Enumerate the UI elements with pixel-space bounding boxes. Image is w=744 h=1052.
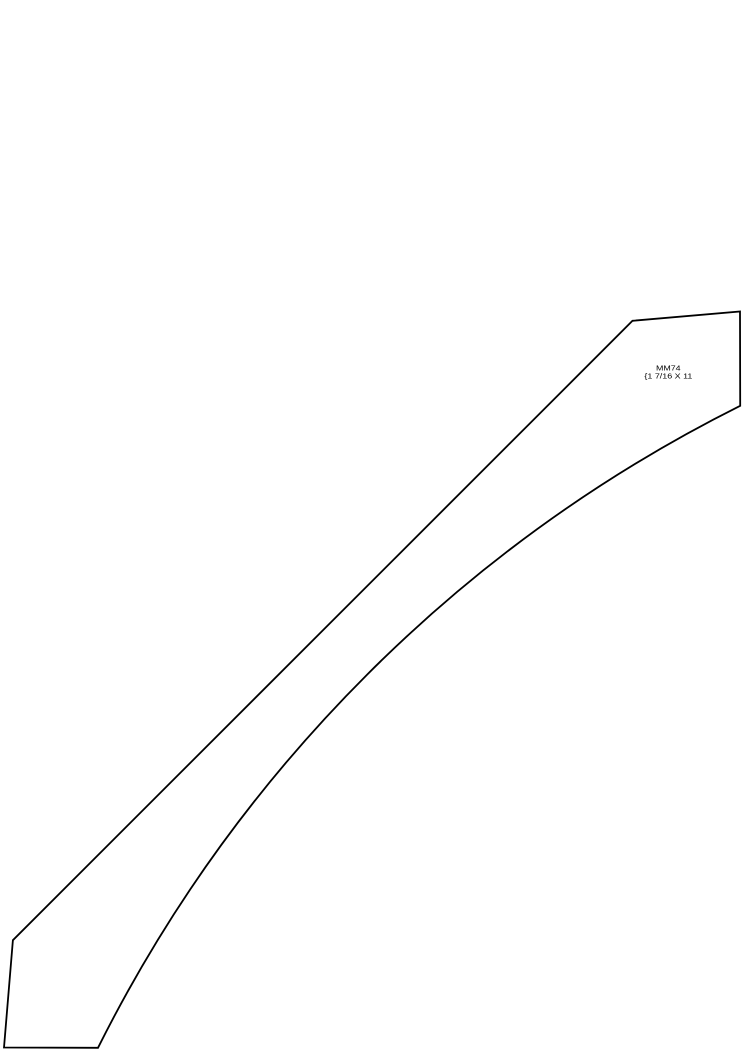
svg-text:{1 7/16 X 11: {1 7/16 X 11 bbox=[644, 371, 692, 380]
